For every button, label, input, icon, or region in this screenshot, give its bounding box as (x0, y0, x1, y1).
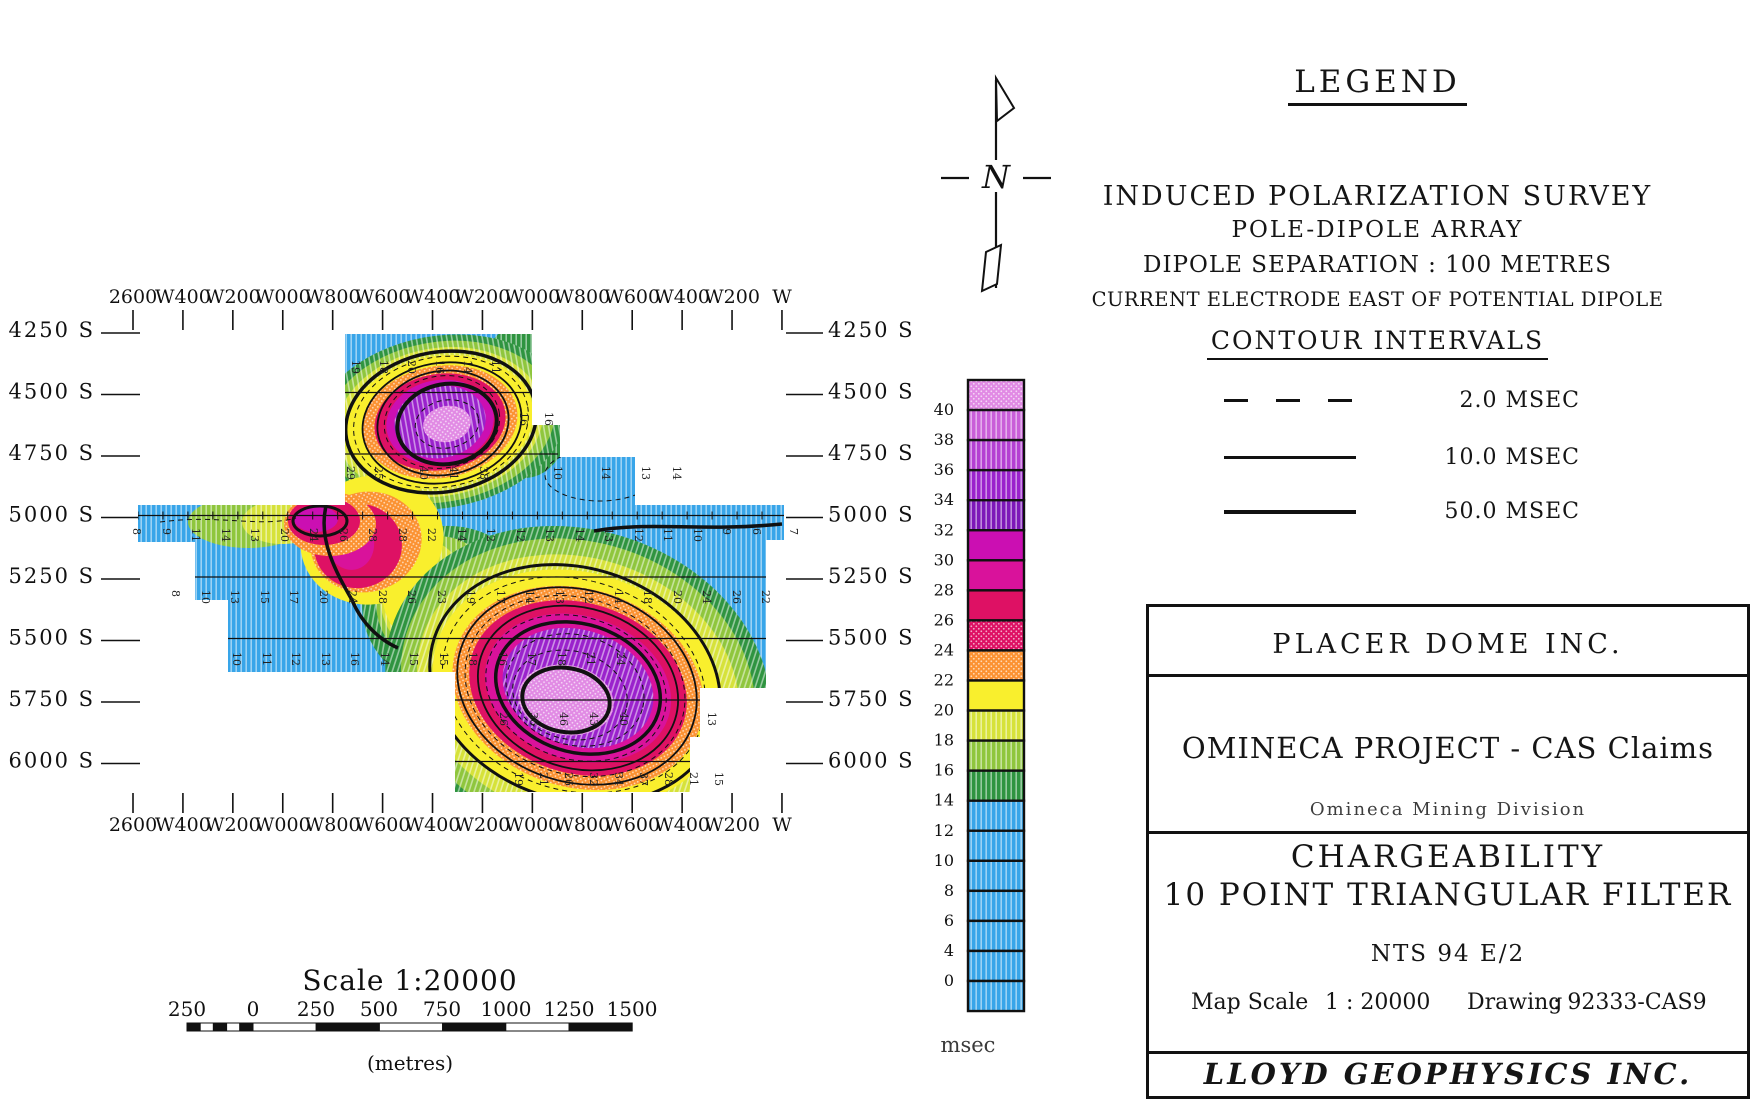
top-axis-label: W800 (305, 286, 361, 308)
station-value: 10 (230, 652, 243, 666)
color-scale-value: 24 (934, 640, 954, 659)
station-value: 7 (787, 528, 800, 535)
color-scale-value: 10 (934, 851, 954, 870)
station-value: 21 (584, 652, 597, 666)
color-scale-value: 14 (934, 791, 954, 810)
map-scale-label: Map Scale (1191, 990, 1308, 1015)
color-scale-cell (968, 530, 1024, 560)
station-value: 13 (228, 590, 241, 604)
color-scale-cell (968, 380, 1024, 410)
bottom-axis-label: W600 (604, 814, 660, 836)
scale-tick-label: 250 (297, 997, 335, 1021)
color-scale-cell (968, 440, 1024, 470)
station-value: 8 (130, 528, 143, 535)
station-value: 20 (317, 590, 330, 604)
project-name: OMINECA PROJECT - CAS Claims (1149, 731, 1747, 765)
color-scale-cell (968, 891, 1024, 921)
station-value: 37 (637, 772, 650, 786)
station-value: 21 (687, 772, 700, 786)
scale-tick-label: 1250 (544, 997, 595, 1021)
color-scale-value: 36 (934, 460, 954, 479)
right-axis-label: 5000 S (828, 503, 915, 527)
color-scale-cell (968, 560, 1024, 590)
contour-interval-row: 10.0 MSEC (1075, 445, 1680, 471)
station-value: 11 (489, 360, 502, 374)
station-value: 19 (464, 590, 477, 604)
scale-tick-label: 1500 (607, 997, 658, 1021)
color-scale-cell (968, 951, 1024, 981)
station-value: 9 (720, 528, 733, 535)
station-value: 22 (425, 528, 438, 542)
left-axis-label: 5250 S (8, 564, 95, 588)
right-axis-label: 5250 S (828, 564, 915, 588)
station-value: 20 (405, 360, 418, 374)
station-value: 24 (346, 590, 359, 604)
station-value: 14 (461, 360, 474, 374)
station-value: 14 (670, 466, 683, 480)
color-scale-value: 40 (934, 400, 954, 419)
legend-survey-type: INDUCED POLARIZATION SURVEY (1075, 181, 1680, 212)
map-scale-row: Map Scale 1 : 20000 Drawing : 92333-CAS9 (1149, 990, 1747, 1018)
station-value: 28 (376, 590, 389, 604)
station-value: 10 (551, 466, 564, 480)
north-label: N (981, 158, 1011, 196)
station-value: 34 (612, 772, 625, 786)
bottom-axis-label: W400 (155, 814, 211, 836)
north-arrow: N (941, 78, 1051, 291)
top-axis-label: W600 (604, 286, 660, 308)
station-value: 19 (349, 360, 362, 374)
divider (1149, 674, 1747, 677)
station-value: 18 (641, 590, 654, 604)
station-value: 18 (377, 360, 390, 374)
legend-panel: LEGEND INDUCED POLARIZATION SURVEY POLE-… (1075, 62, 1680, 532)
station-value: 22 (759, 590, 772, 604)
station-value: 14 (523, 590, 536, 604)
color-scale-value: 20 (934, 701, 954, 720)
thick-contour-line (1224, 510, 1356, 514)
bottom-axis-label: W200 (455, 814, 511, 836)
color-scale-cell (968, 500, 1024, 530)
station-value: 29 (344, 466, 357, 480)
bottom-axis-label: W400 (654, 814, 710, 836)
color-scale-value: 28 (934, 580, 954, 599)
divider (1149, 831, 1747, 834)
station-value: 10 (199, 590, 212, 604)
drawing-label: Drawing (1467, 990, 1562, 1015)
station-value: 15 (258, 590, 271, 604)
station-value: 36 (527, 712, 540, 726)
station-value: 26 (497, 712, 510, 726)
color-scale-cell (968, 650, 1024, 680)
color-scale-unit: msec (941, 1033, 996, 1057)
station-value: 13 (705, 712, 718, 726)
contractor-name: LLOYD GEOPHYSICS INC. (1149, 1057, 1747, 1091)
station-value: 16 (348, 652, 361, 666)
survey-map-sheet: 2600W400W200W000W800W600W400W200W000W800… (0, 0, 1753, 1102)
legend-dipole-separation: DIPOLE SEPARATION : 100 METRES (1075, 252, 1680, 278)
station-value: 28 (396, 528, 409, 542)
legend-electrode-note: CURRENT ELECTRODE EAST OF POTENTIAL DIPO… (1075, 288, 1680, 311)
bottom-axis-label: W400 (405, 814, 461, 836)
color-scale-cell (968, 711, 1024, 741)
bottom-axis-label: W200 (704, 814, 760, 836)
divider (1149, 1051, 1747, 1054)
station-value: 24 (700, 590, 713, 604)
station-value: 12 (582, 590, 595, 604)
top-axis-label: W200 (704, 286, 760, 308)
top-axis-label: W800 (554, 286, 610, 308)
color-scale-cell (968, 861, 1024, 891)
station-value: 16 (433, 360, 446, 374)
title-block: PLACER DOME INC. OMINECA PROJECT - CAS C… (1146, 604, 1750, 1099)
station-value: 17 (494, 590, 507, 604)
color-scale-value: 30 (934, 550, 954, 569)
left-axis-label: 4750 S (8, 441, 95, 465)
map-title-line2: 10 POINT TRIANGULAR FILTER (1149, 877, 1747, 913)
bottom-axis-label: 2600 (109, 814, 157, 836)
station-value: 8 (169, 590, 182, 597)
station-value: 17 (287, 590, 300, 604)
station-value: 46 (557, 712, 570, 726)
dashed-contour-line (1224, 399, 1356, 402)
bottom-axis-label: W800 (305, 814, 361, 836)
station-value: 15 (437, 652, 450, 666)
station-value: 16 (517, 412, 530, 426)
contour-interval-row: 2.0 MSEC (1075, 388, 1680, 414)
station-value: 14 (599, 466, 612, 480)
top-axis-label: 2600 (109, 286, 157, 308)
color-scale-value: 6 (944, 911, 954, 930)
scale-tick-label: 750 (423, 997, 461, 1021)
bottom-axis-label: W (772, 814, 792, 836)
station-value: 19 (512, 772, 525, 786)
scale-tick-label: 0 (247, 997, 260, 1021)
color-scale-cell (968, 410, 1024, 440)
bottom-axis-label: W600 (355, 814, 411, 836)
station-value: 23 (435, 590, 448, 604)
top-axis-label: W400 (155, 286, 211, 308)
contour-interval-row: 50.0 MSEC (1075, 499, 1680, 525)
station-value: 12 (289, 652, 302, 666)
station-value: 20 (278, 528, 291, 542)
scale-title: Scale 1:20000 (302, 964, 517, 997)
station-value: 15 (407, 652, 420, 666)
contour-interval-label: 10.0 MSEC (1445, 445, 1580, 470)
scale-tick-label: 500 (360, 997, 398, 1021)
station-value: 40 (417, 466, 430, 480)
station-value: 17 (525, 652, 538, 666)
station-value: 16 (496, 652, 509, 666)
left-axis-label: 4250 S (8, 318, 95, 342)
station-value: 26 (337, 528, 350, 542)
color-scale-cell (968, 620, 1024, 650)
color-scale-cell (968, 470, 1024, 500)
right-axis-label: 5750 S (828, 687, 915, 711)
station-value: 13 (543, 528, 556, 542)
color-scale-value: 32 (934, 520, 954, 539)
right-axis-label: 4500 S (828, 380, 915, 404)
station-value: 21 (537, 772, 550, 786)
station-value: 11 (661, 528, 674, 542)
contour-intervals-title: CONTOUR INTERVALS (1075, 326, 1680, 360)
station-value: 6 (750, 528, 763, 535)
contour-interval-label: 50.0 MSEC (1445, 499, 1580, 524)
station-value: 13 (602, 528, 615, 542)
station-value: 20 (671, 590, 684, 604)
station-value: 16 (542, 412, 555, 426)
legend-title: LEGEND (1075, 64, 1680, 106)
station-value: 13 (248, 528, 261, 542)
top-axis-label: W200 (455, 286, 511, 308)
station-value: 15 (712, 772, 725, 786)
scale-tick-label: 1000 (481, 997, 532, 1021)
color-scale-cell (968, 831, 1024, 861)
top-axis-label: W000 (504, 286, 560, 308)
top-axis-label: W (772, 286, 792, 308)
station-value: 40 (617, 712, 630, 726)
top-axis-label: W400 (654, 286, 710, 308)
mining-division: Omineca Mining Division (1149, 799, 1747, 820)
contour-interval-label: 2.0 MSEC (1460, 388, 1580, 413)
nts-reference: NTS 94 E/2 (1149, 941, 1747, 967)
color-scale-cell (968, 921, 1024, 951)
station-value: 43 (587, 712, 600, 726)
bottom-axis-label: W800 (554, 814, 610, 836)
station-value: 9 (160, 528, 173, 535)
station-value: 28 (662, 772, 675, 786)
scale-unit-label: (metres) (367, 1051, 453, 1075)
right-axis-label: 4250 S (828, 318, 915, 342)
thin-contour-line (1224, 456, 1356, 459)
station-value: 13 (319, 652, 332, 666)
station-value: 26 (405, 590, 418, 604)
station-value: 11 (189, 528, 202, 542)
right-axis-label: 5500 S (828, 626, 915, 650)
top-axis-label: W600 (355, 286, 411, 308)
bottom-axis-label: W000 (504, 814, 560, 836)
bottom-axis-label: W000 (255, 814, 311, 836)
left-axis-label: 5000 S (8, 503, 95, 527)
station-value: 10 (691, 528, 704, 542)
color-scale-cell (968, 590, 1024, 620)
left-axis-label: 5500 S (8, 626, 95, 650)
color-scale-cell (968, 771, 1024, 801)
station-value: 24 (307, 528, 320, 542)
station-value: 13 (553, 590, 566, 604)
right-axis-label: 6000 S (828, 749, 915, 773)
color-scale: 403836343230282624222018161412108640msec (934, 380, 1024, 1057)
left-axis-label: 5750 S (8, 687, 95, 711)
color-scale-value: 26 (934, 610, 954, 629)
station-value: 38 (477, 466, 490, 480)
color-scale-cell (968, 741, 1024, 771)
bottom-axis-label: W200 (205, 814, 261, 836)
color-scale-value: 16 (934, 761, 954, 780)
station-value: 25 (372, 466, 385, 480)
scale-tick-label: 250 (168, 997, 206, 1021)
station-value: 14 (612, 590, 625, 604)
station-value: 14 (455, 528, 468, 542)
station-value: 14 (378, 652, 391, 666)
station-value: 24 (614, 652, 627, 666)
color-scale-cell (968, 681, 1024, 711)
color-scale-cell (968, 801, 1024, 831)
top-axis-label: W400 (405, 286, 461, 308)
anomaly-b (284, 492, 376, 556)
color-scale-value: 34 (934, 490, 954, 509)
station-value: 26 (562, 772, 575, 786)
map-title-line1: CHARGEABILITY (1149, 839, 1747, 875)
color-scale-value: 38 (934, 430, 954, 449)
color-scale-value: 12 (934, 821, 954, 840)
station-value: 13 (639, 466, 652, 480)
top-axis-label: W200 (205, 286, 261, 308)
color-scale-value: 8 (944, 881, 954, 900)
station-value: 18 (555, 652, 568, 666)
color-scale-value: 18 (934, 731, 954, 750)
top-axis-label: W000 (255, 286, 311, 308)
company-name: PLACER DOME INC. (1149, 629, 1747, 660)
station-value: 41 (447, 466, 460, 480)
station-value: 14 (573, 528, 586, 542)
station-value: 12 (514, 528, 527, 542)
drawing-number: : 92333-CAS9 (1553, 990, 1707, 1015)
station-value: 28 (366, 528, 379, 542)
map-scale-value: 1 : 20000 (1325, 990, 1430, 1015)
color-scale-cell (968, 981, 1024, 1011)
station-value: 26 (730, 590, 743, 604)
scale-bar: Scale 1:200002500250500750100012501500(m… (168, 964, 658, 1075)
station-value: 14 (219, 528, 232, 542)
station-value: 12 (484, 528, 497, 542)
station-value: 11 (260, 652, 273, 666)
color-scale-value: 0 (944, 971, 954, 990)
station-value: 32 (587, 772, 600, 786)
station-value: 12 (632, 528, 645, 542)
color-scale-value: 22 (934, 671, 954, 690)
station-value: 18 (466, 652, 479, 666)
color-scale-value: 4 (944, 941, 954, 960)
right-axis-label: 4750 S (828, 441, 915, 465)
left-axis-label: 6000 S (8, 749, 95, 773)
left-axis-label: 4500 S (8, 380, 95, 404)
legend-array-type: POLE-DIPOLE ARRAY (1075, 217, 1680, 243)
